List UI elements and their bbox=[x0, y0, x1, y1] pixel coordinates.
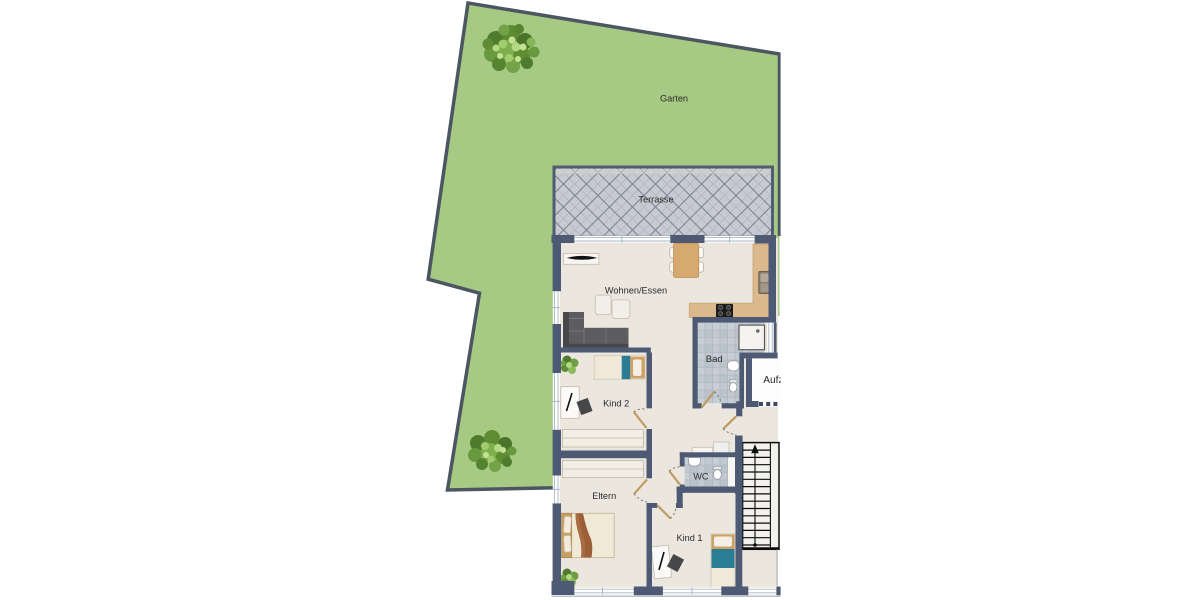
svg-text:Kind 1: Kind 1 bbox=[676, 533, 702, 543]
svg-text:Garten: Garten bbox=[660, 94, 688, 104]
svg-text:Eltern: Eltern bbox=[592, 491, 616, 501]
svg-text:Wohnen/Essen: Wohnen/Essen bbox=[605, 286, 667, 296]
svg-text:Kind 2: Kind 2 bbox=[603, 399, 629, 409]
svg-text:Bad: Bad bbox=[706, 354, 723, 365]
svg-text:WC: WC bbox=[693, 471, 709, 481]
svg-text:Terrasse: Terrasse bbox=[638, 195, 673, 205]
